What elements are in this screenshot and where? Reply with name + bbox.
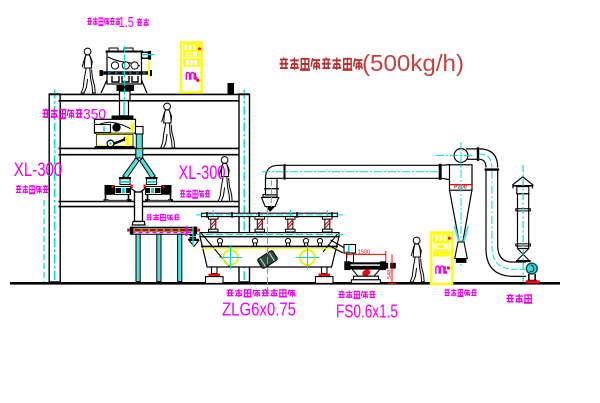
svg-text:FS0.6x1.5: FS0.6x1.5: [336, 302, 398, 322]
svg-text:ZLG6x0.75: ZLG6x0.75: [222, 300, 296, 320]
svg-text:350: 350: [83, 106, 106, 123]
svg-text:1500: 1500: [358, 250, 370, 256]
svg-text:XL-300: XL-300: [14, 160, 63, 181]
svg-text:548: 548: [387, 270, 393, 279]
svg-text:1.5: 1.5: [119, 15, 135, 31]
svg-text:P200: P200: [454, 185, 467, 191]
svg-text:XL-300: XL-300: [179, 163, 226, 184]
svg-text:(500kg/h): (500kg/h): [362, 50, 464, 76]
